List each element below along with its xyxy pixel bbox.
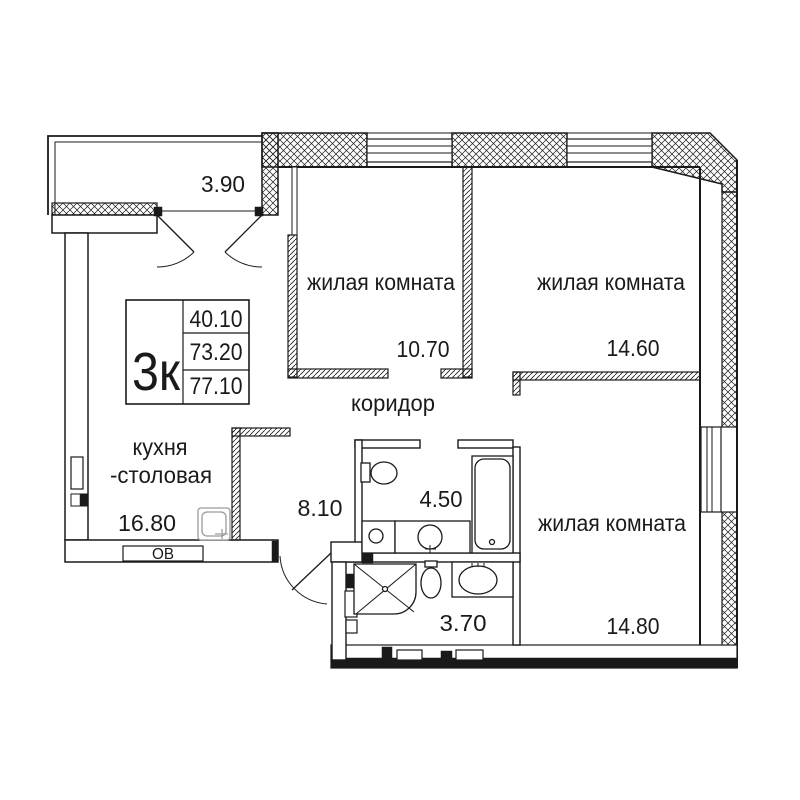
washing-machine xyxy=(362,521,395,553)
kitchen-label-line1: кухня xyxy=(133,434,188,460)
kitchen-label-line2: -столовая xyxy=(110,462,212,488)
living3-area: 14.80 xyxy=(607,613,660,639)
unit-type-label: 3к xyxy=(132,342,180,402)
living2-area: 14.60 xyxy=(607,335,660,361)
unit-info-table: 3к 40.10 73.20 77.10 xyxy=(126,300,249,404)
balcony-area: 3.90 xyxy=(201,171,245,197)
wc-area: 3.70 xyxy=(440,610,487,636)
floor-plan-drawing: ОВ 3к 40.10 73.20 77.10 3.90 жилая комна… xyxy=(0,0,800,800)
kitchen-area: 16.80 xyxy=(118,510,176,536)
balcony-sill-wall xyxy=(52,203,157,215)
shower-tray xyxy=(354,564,416,614)
wall-niche xyxy=(71,457,83,489)
window-top-1 xyxy=(367,139,452,162)
kitchen-sink xyxy=(198,508,230,540)
balcony-side-wall xyxy=(262,133,278,215)
living1-label: жилая комната xyxy=(307,269,455,295)
vanity-sink xyxy=(452,562,513,597)
heating-unit-label: ОВ xyxy=(152,546,174,563)
living3-label: жилая комната xyxy=(538,510,686,536)
bathtub xyxy=(472,456,513,553)
unit-area-living: 40.10 xyxy=(190,306,243,333)
unit-area-total: 77.10 xyxy=(190,373,243,400)
heating-unit-box: ОВ xyxy=(123,546,203,563)
sink-counter xyxy=(395,521,470,553)
living1-area: 10.70 xyxy=(397,336,450,362)
window-right xyxy=(701,427,721,512)
living2-label: жилая комната xyxy=(537,269,685,295)
window-top-2 xyxy=(567,139,652,162)
door-jamb xyxy=(272,541,278,562)
unit-area-main: 73.20 xyxy=(190,339,243,366)
bathroom-area: 4.50 xyxy=(420,486,463,512)
toilet xyxy=(361,462,397,484)
entry-wall xyxy=(332,562,346,660)
floor-plan: ОВ 3к 40.10 73.20 77.10 3.90 жилая комна… xyxy=(0,0,800,800)
corridor-area: 8.10 xyxy=(298,495,343,521)
corridor-label: коридор xyxy=(351,390,435,416)
